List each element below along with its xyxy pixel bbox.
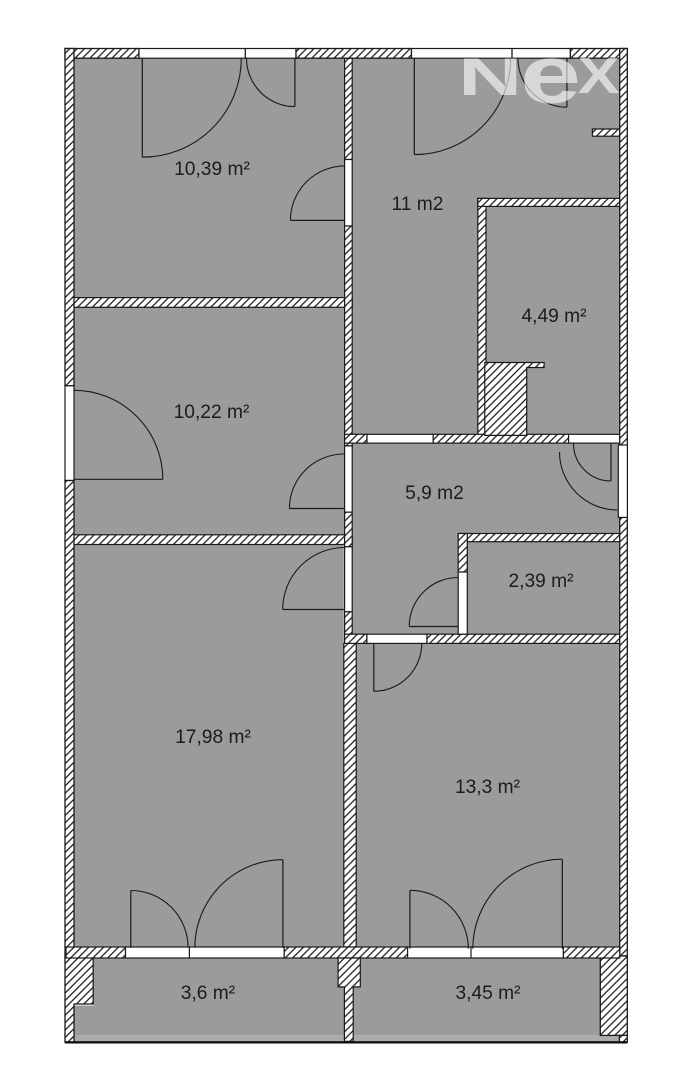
- svg-text:N: N: [458, 48, 522, 106]
- svg-text:11 m2: 11 m2: [392, 194, 444, 215]
- svg-text:2,39 m²: 2,39 m²: [508, 571, 574, 592]
- svg-text:10,39 m²: 10,39 m²: [174, 159, 250, 180]
- svg-text:10,22 m²: 10,22 m²: [174, 402, 250, 423]
- svg-text:4,49 m²: 4,49 m²: [521, 306, 587, 327]
- svg-text:X: X: [578, 48, 620, 105]
- svg-text:3,45 m²: 3,45 m²: [455, 983, 521, 1004]
- svg-text:5,9 m2: 5,9 m2: [405, 483, 464, 504]
- svg-text:e: e: [520, 27, 581, 120]
- svg-text:13,3 m²: 13,3 m²: [455, 777, 521, 798]
- svg-text:17,98 m²: 17,98 m²: [175, 727, 251, 748]
- svg-text:3,6 m²: 3,6 m²: [181, 983, 236, 1004]
